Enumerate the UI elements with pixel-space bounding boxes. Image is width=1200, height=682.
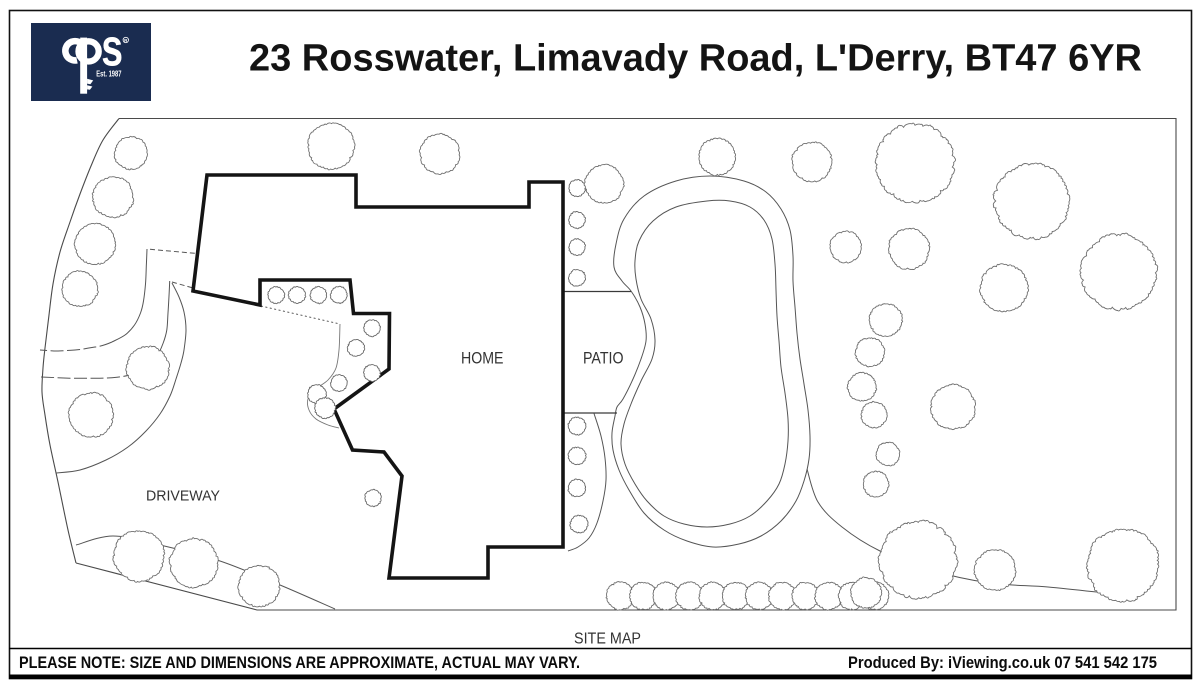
- svg-text:PLEASE NOTE: SIZE AND DIMENSIO: PLEASE NOTE: SIZE AND DIMENSIONS ARE APP…: [19, 653, 580, 672]
- svg-text:Produced By: iViewing.co.uk 07: Produced By: iViewing.co.uk 07 541 542 1…: [848, 653, 1157, 672]
- svg-text:s: s: [101, 18, 123, 77]
- svg-text:DRIVEWAY: DRIVEWAY: [146, 488, 220, 505]
- svg-text:PATIO: PATIO: [583, 349, 624, 368]
- svg-text:Est. 1987: Est. 1987: [96, 69, 122, 78]
- svg-text:23 Rosswater, Limavady Road, L: 23 Rosswater, Limavady Road, L'Derry, BT…: [249, 38, 1142, 80]
- svg-text:HOME: HOME: [461, 349, 504, 368]
- svg-text:SITE MAP: SITE MAP: [574, 631, 641, 648]
